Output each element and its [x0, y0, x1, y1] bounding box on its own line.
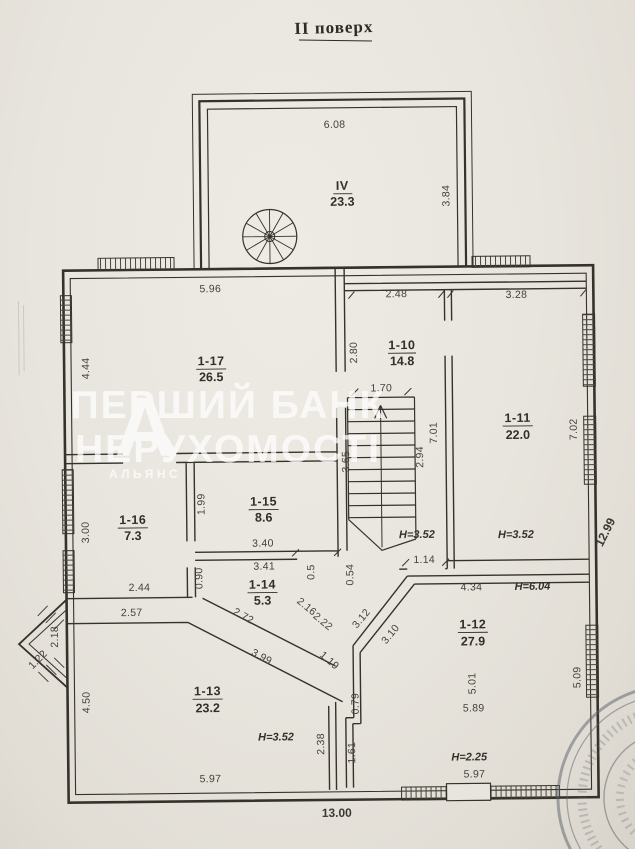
dim-r17-left: 4.44 [80, 358, 92, 380]
dim-r14-width: 3.41 [253, 560, 275, 572]
spiral-staircase-icon [242, 209, 297, 264]
height-room-1-12-up: Н=6.04 [514, 581, 550, 593]
window-right-2 [584, 416, 597, 484]
dim-iv-width: 6.08 [324, 119, 346, 131]
dim-iv-depth: 3.84 [440, 185, 452, 207]
floor-title: ІІ поверх [294, 17, 374, 38]
window-right-3 [586, 625, 599, 697]
height-room-1-13: Н=3.52 [258, 731, 294, 743]
dim-r16-left: 3.00 [80, 522, 92, 544]
dim-corr-c: 2.22 [311, 610, 335, 633]
dim-corr-g: 3.10 [379, 622, 402, 646]
dim-r12-right: 5.09 [571, 666, 583, 688]
dim-r15-left: 1.99 [195, 493, 207, 515]
room-iv-area: 23.3 [330, 195, 355, 209]
dim-r16-below: 2.57 [121, 607, 143, 619]
dim-r14-right-a: 0.5 [305, 564, 317, 580]
window-right-1 [583, 314, 596, 386]
watermark: А АЛЬЯНС ПЕРШИЙ БАНК НЕРУХОМОСТІ [71, 380, 386, 481]
dim-r12-bottom: 5.97 [464, 768, 486, 780]
floorplan-svg: ІІ поверх [0, 0, 635, 849]
title-underline [299, 40, 372, 41]
room-1-16-area: 7.3 [124, 529, 142, 543]
dim-r13-width: 5.97 [200, 773, 222, 785]
dim-r13-right: 2.38 [315, 733, 327, 755]
room-1-13-area: 23.2 [195, 701, 220, 715]
height-room-1-11: Н=3.52 [498, 529, 534, 541]
room-1-17-area: 26.5 [199, 370, 224, 384]
dim-r12-inner-v: 5.01 [466, 673, 478, 695]
dim-r10-width: 2.48 [385, 288, 407, 300]
dim-corr-f: 3.12 [350, 606, 373, 630]
dim-r12-width: 4.34 [461, 581, 483, 593]
room-1-11-id: 1-11 [504, 411, 530, 425]
window-left-2 [62, 470, 74, 534]
dim-corr-d: 1.19 [317, 649, 341, 672]
room-iv-id: IV [336, 179, 349, 193]
watermark-line1: ПЕРШИЙ БАНК [71, 382, 386, 427]
dim-r16-width: 2.44 [129, 582, 151, 594]
room-1-12-area: 27.9 [461, 634, 486, 648]
balcony-door [447, 783, 491, 800]
room-1-12-id: 1-12 [459, 617, 486, 631]
dim-r10-left: 2.80 [348, 342, 360, 364]
window-top-1 [98, 258, 174, 271]
dim-stair-run: 2.94 [414, 446, 426, 468]
room-1-10-id: 1-10 [388, 338, 415, 352]
room-1-15-area: 8.6 [255, 511, 273, 525]
room-1-15-id: 1-15 [250, 494, 277, 508]
dim-r14-left: 0.90 [193, 567, 205, 589]
page-title: ІІ поверх [294, 17, 374, 41]
room-1-14-id: 1-14 [249, 577, 276, 591]
room-1-11-area: 22.0 [506, 428, 531, 442]
scanned-floorplan-page: ІІ поверх [0, 0, 635, 849]
dim-r17-width: 5.96 [199, 283, 221, 295]
height-labels: Н=3.52 Н=3.52 Н=3.52 Н=6.04 Н=2.25 [256, 528, 552, 766]
scan-artifact [18, 301, 24, 375]
watermark-line2: НЕРУХОМОСТІ [75, 428, 381, 471]
dim-r11-width: 3.28 [506, 289, 528, 301]
room-1-10-area: 14.8 [390, 354, 415, 368]
dim-r11-left: 7.01 [428, 422, 440, 444]
room-1-17-id: 1-17 [197, 354, 224, 368]
dim-r15-width: 3.40 [252, 537, 274, 549]
dim-r12-left-a: 0.79 [350, 693, 362, 715]
room-1-14-area: 5.3 [254, 594, 272, 608]
dim-r12-inner-h: 5.89 [463, 702, 485, 714]
height-room-1-12-lo: Н=2.25 [451, 751, 488, 763]
dim-r14-right-b: 0.54 [344, 564, 356, 586]
window-top-2 [472, 256, 530, 268]
height-stair-hall: Н=3.52 [399, 529, 435, 541]
dim-r13-left: 4.50 [81, 692, 93, 714]
window-left-3 [63, 551, 74, 593]
dim-hall-opening: 1.14 [413, 554, 435, 566]
dim-r11-right: 7.02 [568, 418, 580, 440]
dim-total-bottom: 13.00 [322, 806, 353, 820]
round-stamp-icon [544, 672, 635, 849]
dim-r12-left-b: 1.61 [346, 742, 358, 764]
window-left-1 [60, 296, 71, 343]
dim-bay-width: 2.18 [49, 626, 61, 648]
room-1-13-id: 1-13 [194, 684, 221, 698]
room-1-16-id: 1-16 [119, 513, 146, 527]
